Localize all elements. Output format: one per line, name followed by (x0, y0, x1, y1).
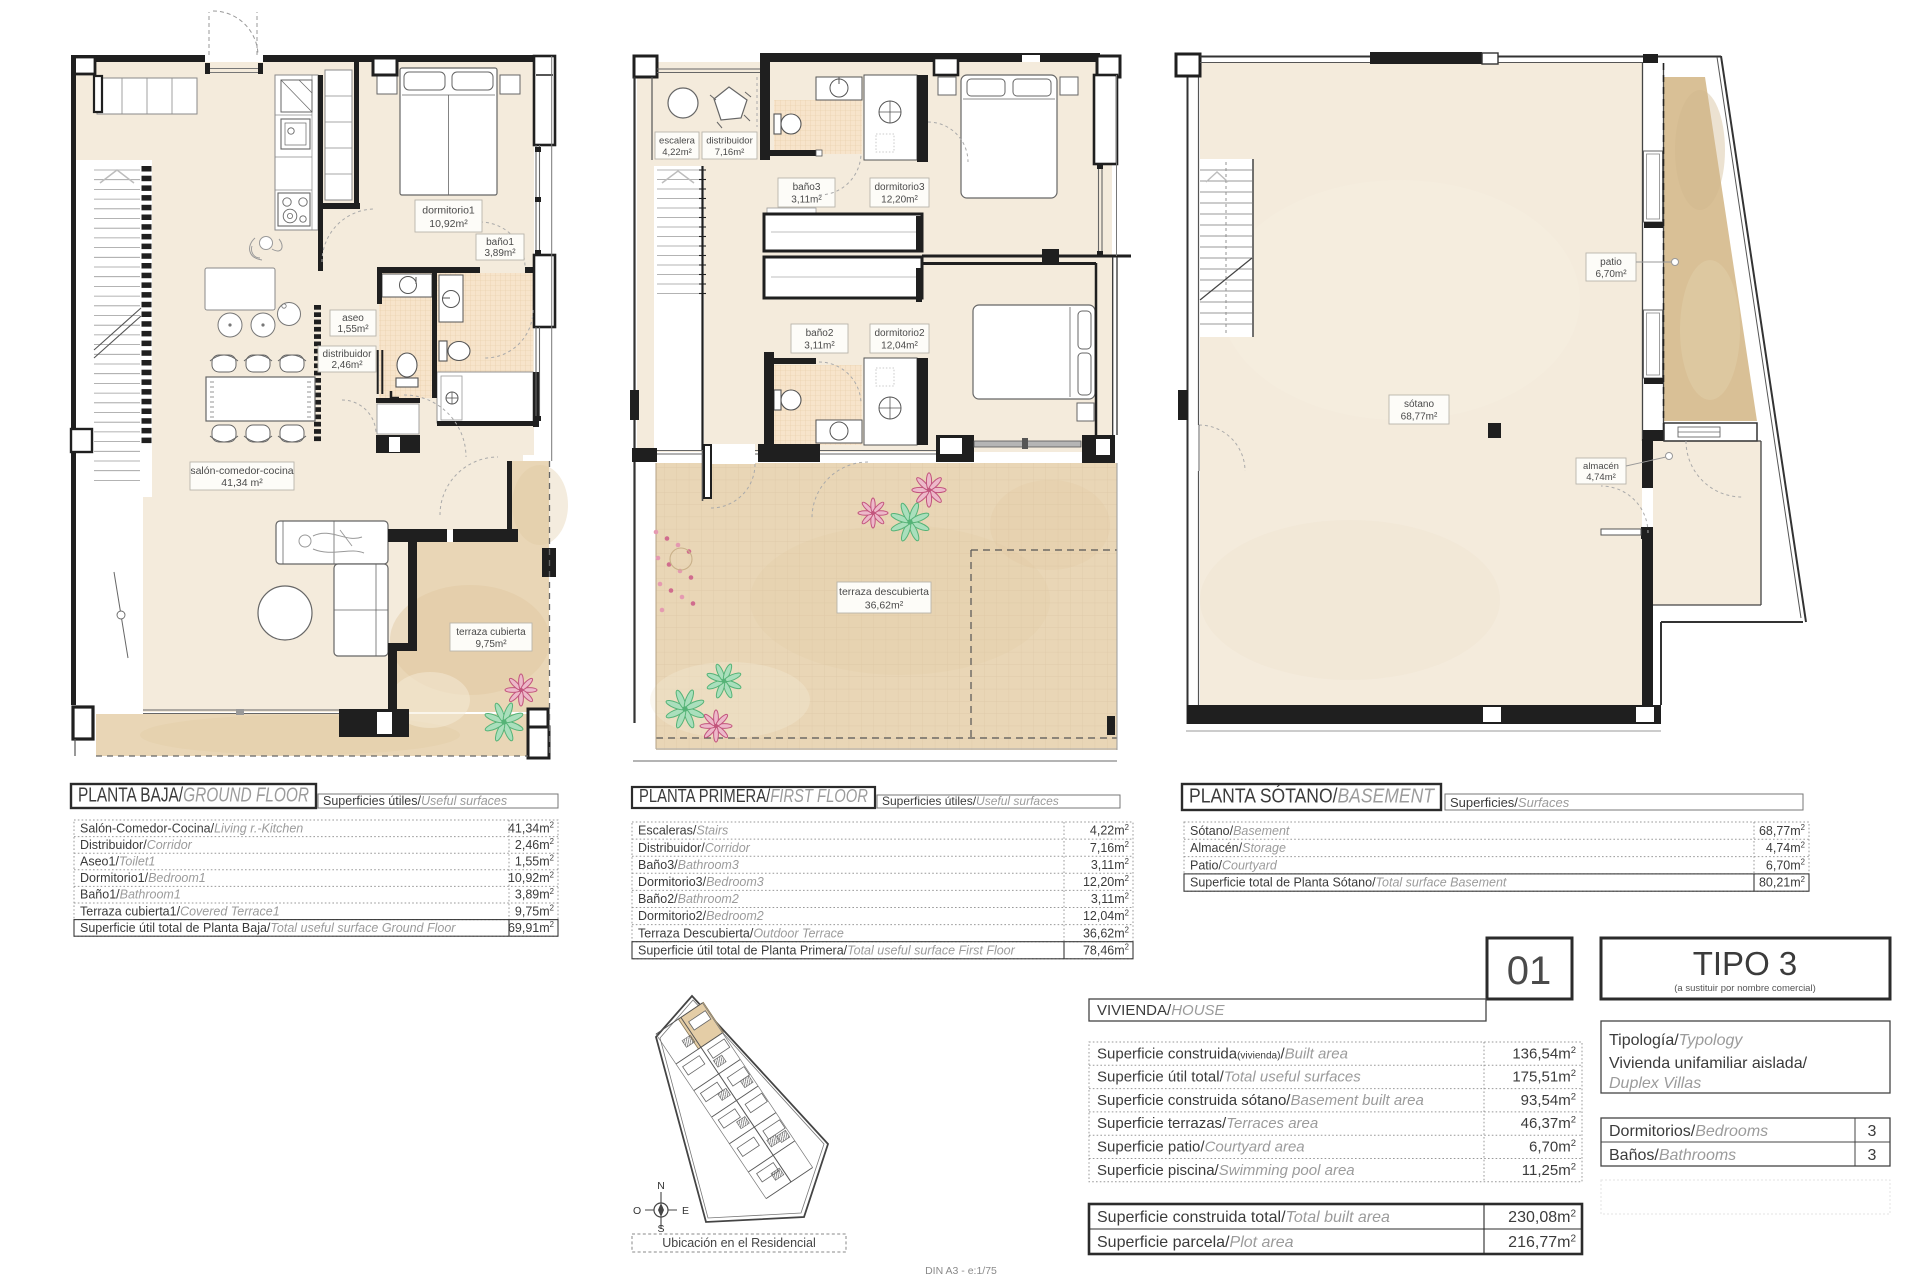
svg-text:Sótano/Basement: Sótano/Basement (1190, 824, 1290, 838)
svg-text:68,77m²: 68,77m² (1401, 412, 1438, 423)
svg-text:2,46m2: 2,46m2 (515, 837, 554, 852)
svg-text:Baño3/Bathroom3: Baño3/Bathroom3 (638, 858, 739, 872)
svg-text:2,46m²: 2,46m² (331, 360, 363, 371)
svg-text:(a sustituir por nombre comerc: (a sustituir por nombre comercial) (1674, 983, 1816, 994)
svg-text:46,37m2: 46,37m2 (1521, 1115, 1576, 1133)
svg-text:Superficie construida total/To: Superficie construida total/Total built … (1097, 1209, 1390, 1226)
svg-text:Aseo1/Toilet1: Aseo1/Toilet1 (80, 855, 155, 869)
svg-text:salón-comedor-cocina: salón-comedor-cocina (190, 465, 293, 477)
svg-text:69,91m2: 69,91m2 (508, 920, 554, 935)
svg-text:baño2: baño2 (806, 328, 834, 339)
svg-text:PLANTA PRIMERA/FIRST FLOOR: PLANTA PRIMERA/FIRST FLOOR (639, 786, 868, 806)
svg-text:01: 01 (1507, 949, 1552, 993)
svg-text:N: N (657, 1180, 665, 1192)
svg-text:4,22m2: 4,22m2 (1090, 823, 1129, 838)
svg-text:terraza descubierta: terraza descubierta (839, 586, 929, 598)
svg-text:escalera: escalera (659, 135, 696, 146)
svg-text:10,92m²: 10,92m² (429, 218, 468, 230)
svg-text:dormitorio3: dormitorio3 (874, 182, 924, 193)
svg-text:4,74m2: 4,74m2 (1766, 840, 1805, 855)
svg-text:3,11m2: 3,11m2 (1091, 891, 1129, 906)
svg-text:dormitorio1: dormitorio1 (422, 204, 475, 216)
svg-text:36,62m²: 36,62m² (865, 599, 904, 611)
svg-text:80,21m2: 80,21m2 (1759, 875, 1805, 890)
svg-text:6,70m2: 6,70m2 (1529, 1138, 1576, 1156)
svg-text:41,34 m²: 41,34 m² (221, 477, 263, 489)
svg-text:3,11m²: 3,11m² (804, 341, 835, 352)
svg-text:3,11m2: 3,11m2 (1091, 857, 1129, 872)
svg-text:VIVIENDA/HOUSE: VIVIENDA/HOUSE (1097, 1002, 1226, 1019)
svg-text:O: O (633, 1205, 641, 1217)
svg-text:Terraza Descubierta/Outdoor Te: Terraza Descubierta/Outdoor Terrace (638, 926, 844, 940)
svg-text:Baño1/Bathroom1: Baño1/Bathroom1 (80, 888, 181, 902)
svg-text:78,46m2: 78,46m2 (1083, 943, 1129, 958)
svg-text:PLANTA SÓTANO/BASEMENT: PLANTA SÓTANO/BASEMENT (1189, 785, 1436, 808)
svg-text:distribuidor: distribuidor (706, 135, 752, 146)
svg-text:Superficie útil total de Plant: Superficie útil total de Planta Primera/… (638, 943, 1016, 957)
svg-text:10,92m2: 10,92m2 (508, 870, 554, 885)
svg-text:baño3: baño3 (793, 182, 821, 193)
svg-text:Ubicación en el Residencial: Ubicación en el Residencial (662, 1236, 816, 1250)
svg-text:Superficie útil total/Total us: Superficie útil total/Total useful surfa… (1097, 1069, 1361, 1086)
svg-text:12,04m²: 12,04m² (881, 341, 918, 352)
svg-text:Superficies/Surfaces: Superficies/Surfaces (1450, 795, 1570, 810)
svg-text:11,25m2: 11,25m2 (1522, 1161, 1576, 1179)
svg-text:DIN A3 - e:1/75: DIN A3 - e:1/75 (925, 1265, 997, 1277)
svg-text:6,70m²: 6,70m² (1595, 269, 1627, 280)
svg-text:3,11m²: 3,11m² (791, 195, 822, 206)
svg-text:Tipología/Typology: Tipología/Typology (1609, 1032, 1743, 1049)
svg-text:PLANTA BAJA/GROUND FLOOR: PLANTA BAJA/GROUND FLOOR (78, 784, 309, 806)
svg-text:Distribuidor/Corridor: Distribuidor/Corridor (80, 838, 193, 852)
svg-text:dormitorio2: dormitorio2 (874, 328, 924, 339)
svg-text:3,89m2: 3,89m2 (515, 887, 554, 902)
svg-text:Patio/Courtyard: Patio/Courtyard (1190, 858, 1278, 872)
svg-text:36,62m2: 36,62m2 (1083, 926, 1129, 941)
svg-text:3: 3 (1868, 1147, 1877, 1164)
svg-text:Dormitorio2/Bedroom2: Dormitorio2/Bedroom2 (638, 909, 764, 923)
svg-text:12,20m2: 12,20m2 (1083, 874, 1129, 889)
svg-text:12,04m2: 12,04m2 (1083, 908, 1129, 923)
svg-text:41,34m2: 41,34m2 (508, 821, 554, 836)
svg-text:Baños/Bathrooms: Baños/Bathrooms (1609, 1147, 1736, 1164)
svg-text:3,89m²: 3,89m² (484, 248, 516, 259)
svg-text:Vivienda unifamiliar aislada/: Vivienda unifamiliar aislada/ (1609, 1055, 1808, 1072)
svg-text:230,08m2: 230,08m2 (1508, 1209, 1576, 1227)
svg-text:1,55m2: 1,55m2 (515, 854, 554, 869)
svg-text:terraza cubierta: terraza cubierta (456, 627, 526, 638)
svg-text:Superficie total de Planta Sót: Superficie total de Planta Sótano/Total … (1190, 876, 1507, 890)
svg-text:Almacén/Storage: Almacén/Storage (1190, 841, 1286, 855)
svg-text:baño1: baño1 (486, 237, 514, 248)
svg-text:4,22m²: 4,22m² (662, 147, 692, 158)
svg-text:TIPO 3: TIPO 3 (1693, 945, 1798, 982)
svg-text:136,54m2: 136,54m2 (1512, 1045, 1576, 1063)
svg-text:distribuidor: distribuidor (323, 349, 373, 360)
svg-text:almacén: almacén (1583, 461, 1619, 472)
svg-text:sótano: sótano (1404, 399, 1434, 410)
svg-text:68,77m2: 68,77m2 (1759, 823, 1805, 838)
svg-text:3: 3 (1868, 1123, 1877, 1140)
svg-text:4,74m²: 4,74m² (1586, 472, 1616, 483)
svg-text:Superficie patio/Courtyard are: Superficie patio/Courtyard area (1097, 1139, 1305, 1156)
svg-text:Dormitorio1/Bedroom1: Dormitorio1/Bedroom1 (80, 871, 206, 885)
svg-text:7,16m2: 7,16m2 (1090, 840, 1129, 855)
svg-text:Superficies útiles/Useful surf: Superficies útiles/Useful surfaces (882, 794, 1059, 808)
svg-text:Superficie terrazas/Terraces a: Superficie terrazas/Terraces area (1097, 1115, 1318, 1132)
svg-text:Superficie piscina/Swimming po: Superficie piscina/Swimming pool area (1097, 1162, 1355, 1179)
svg-text:9,75m2: 9,75m2 (515, 904, 554, 919)
svg-text:Superficie parcela/Plot area: Superficie parcela/Plot area (1097, 1234, 1294, 1251)
svg-text:175,51m2: 175,51m2 (1512, 1068, 1576, 1086)
svg-text:Terraza cubierta1/Covered Terr: Terraza cubierta1/Covered Terrace1 (80, 904, 280, 918)
svg-text:patio: patio (1600, 257, 1622, 268)
svg-text:Escaleras/Stairs: Escaleras/Stairs (638, 824, 728, 838)
svg-text:Superficie construida(vivienda: Superficie construida(vivienda)/Built ar… (1097, 1045, 1348, 1062)
svg-text:S: S (657, 1223, 664, 1235)
svg-text:Dormitorio3/Bedroom3: Dormitorio3/Bedroom3 (638, 875, 764, 889)
svg-text:Dormitorios/Bedrooms: Dormitorios/Bedrooms (1609, 1123, 1768, 1140)
svg-text:9,75m²: 9,75m² (475, 639, 507, 650)
svg-text:Superficie construida sótano/B: Superficie construida sótano/Basement bu… (1097, 1092, 1424, 1109)
svg-text:216,77m2: 216,77m2 (1508, 1234, 1576, 1252)
svg-text:Superficie útil total de Plant: Superficie útil total de Planta Baja/Tot… (80, 921, 456, 935)
svg-text:aseo: aseo (342, 313, 364, 324)
svg-text:93,54m2: 93,54m2 (1521, 1091, 1576, 1109)
svg-text:E: E (682, 1205, 689, 1217)
svg-text:Salón-Comedor-Cocina/Living r.: Salón-Comedor-Cocina/Living r.-Kitchen (80, 821, 303, 835)
svg-text:Distribuidor/Corridor: Distribuidor/Corridor (638, 841, 751, 855)
svg-text:1,55m²: 1,55m² (337, 324, 369, 335)
svg-text:12,20m²: 12,20m² (881, 195, 918, 206)
svg-text:Baño2/Bathroom2: Baño2/Bathroom2 (638, 892, 739, 906)
svg-text:7,16m²: 7,16m² (715, 147, 745, 158)
svg-text:Superficies útiles/Useful surf: Superficies útiles/Useful surfaces (323, 794, 507, 808)
svg-text:Duplex Villas: Duplex Villas (1609, 1075, 1701, 1092)
svg-text:6,70m2: 6,70m2 (1766, 858, 1805, 873)
